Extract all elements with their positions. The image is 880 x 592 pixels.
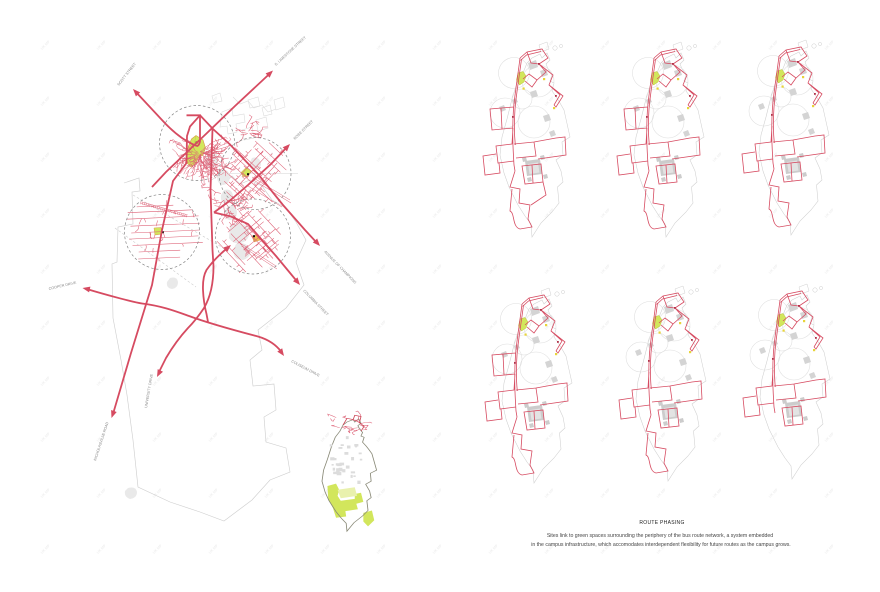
svg-text:UK MP: UK MP — [152, 319, 163, 330]
svg-text:UK MP: UK MP — [264, 263, 275, 274]
svg-text:UK MP: UK MP — [376, 95, 387, 106]
svg-text:UK MP: UK MP — [264, 39, 275, 50]
svg-text:UK MP: UK MP — [488, 431, 499, 442]
svg-text:UK MP: UK MP — [432, 319, 443, 330]
svg-text:UK MP: UK MP — [712, 39, 723, 50]
svg-text:UK MP: UK MP — [152, 95, 163, 106]
svg-text:UK MP: UK MP — [544, 39, 555, 50]
svg-text:UK MP: UK MP — [488, 375, 499, 386]
svg-text:UK MP: UK MP — [824, 543, 835, 554]
svg-text:UK MP: UK MP — [320, 207, 331, 218]
svg-text:UK MP: UK MP — [824, 487, 835, 498]
svg-text:UK MP: UK MP — [600, 151, 611, 162]
svg-text:UK MP: UK MP — [40, 207, 51, 218]
svg-text:UK MP: UK MP — [264, 487, 275, 498]
svg-text:UK MP: UK MP — [376, 487, 387, 498]
svg-text:UK MP: UK MP — [40, 263, 51, 274]
svg-text:UK MP: UK MP — [824, 151, 835, 162]
svg-text:UK MP: UK MP — [40, 95, 51, 106]
svg-text:UK MP: UK MP — [488, 207, 499, 218]
svg-text:SCOTT STREET: SCOTT STREET — [117, 61, 138, 86]
svg-text:UK MP: UK MP — [488, 487, 499, 498]
svg-text:UK MP: UK MP — [376, 263, 387, 274]
svg-text:UK MP: UK MP — [600, 319, 611, 330]
svg-text:UK MP: UK MP — [712, 151, 723, 162]
svg-text:UK MP: UK MP — [656, 263, 667, 274]
svg-text:S. LIMESTONE STREET: S. LIMESTONE STREET — [274, 35, 307, 67]
svg-text:UK MP: UK MP — [488, 263, 499, 274]
svg-text:UK MP: UK MP — [40, 375, 51, 386]
svg-text:UK MP: UK MP — [824, 263, 835, 274]
svg-text:UK MP: UK MP — [600, 263, 611, 274]
svg-text:UK MP: UK MP — [432, 95, 443, 106]
svg-text:UK MP: UK MP — [320, 95, 331, 106]
svg-text:UK MP: UK MP — [376, 207, 387, 218]
svg-text:UK MP: UK MP — [40, 431, 51, 442]
svg-text:ROSE STREET: ROSE STREET — [293, 119, 315, 141]
svg-text:UK MP: UK MP — [376, 151, 387, 162]
svg-text:COLISEUM DRIVE: COLISEUM DRIVE — [291, 359, 321, 378]
svg-text:UK MP: UK MP — [432, 431, 443, 442]
svg-text:UK MP: UK MP — [320, 431, 331, 442]
svg-text:UK MP: UK MP — [96, 263, 107, 274]
svg-text:UK MP: UK MP — [320, 39, 331, 50]
svg-text:UK MP: UK MP — [208, 431, 219, 442]
svg-text:UK MP: UK MP — [152, 151, 163, 162]
svg-text:UK MP: UK MP — [376, 319, 387, 330]
svg-text:UK MP: UK MP — [432, 263, 443, 274]
svg-text:UK MP: UK MP — [600, 431, 611, 442]
svg-text:UK MP: UK MP — [544, 431, 555, 442]
svg-text:UK MP: UK MP — [320, 263, 331, 274]
svg-text:UK MP: UK MP — [600, 95, 611, 106]
svg-text:UK MP: UK MP — [768, 487, 779, 498]
svg-text:UK MP: UK MP — [768, 151, 779, 162]
svg-text:UK MP: UK MP — [656, 431, 667, 442]
svg-text:UK MP: UK MP — [96, 207, 107, 218]
svg-text:UK MP: UK MP — [96, 151, 107, 162]
svg-text:UK MP: UK MP — [376, 431, 387, 442]
svg-text:UK MP: UK MP — [600, 207, 611, 218]
svg-text:UK MP: UK MP — [376, 39, 387, 50]
svg-text:UK MP: UK MP — [600, 487, 611, 498]
svg-text:UK MP: UK MP — [152, 375, 163, 386]
svg-text:UK MP: UK MP — [824, 39, 835, 50]
svg-text:UK MP: UK MP — [376, 375, 387, 386]
svg-text:COOPER DRIVE: COOPER DRIVE — [48, 281, 77, 291]
svg-text:UK MP: UK MP — [320, 375, 331, 386]
svg-text:UK MP: UK MP — [96, 95, 107, 106]
svg-text:UK MP: UK MP — [432, 375, 443, 386]
svg-text:UK MP: UK MP — [152, 543, 163, 554]
svg-text:UK MP: UK MP — [656, 207, 667, 218]
svg-text:UK MP: UK MP — [40, 39, 51, 50]
svg-text:in the campus infrastructure,: in the campus infrastructure, which acco… — [531, 542, 791, 548]
svg-text:UK MP: UK MP — [40, 543, 51, 554]
svg-text:UK MP: UK MP — [712, 319, 723, 330]
svg-text:UK MP: UK MP — [432, 543, 443, 554]
svg-text:UK MP: UK MP — [768, 263, 779, 274]
svg-text:UK MP: UK MP — [600, 375, 611, 386]
svg-text:UK MP: UK MP — [432, 487, 443, 498]
svg-text:UK MP: UK MP — [712, 95, 723, 106]
svg-text:UK MP: UK MP — [488, 39, 499, 50]
svg-text:UK MP: UK MP — [824, 95, 835, 106]
svg-text:UK MP: UK MP — [152, 39, 163, 50]
svg-text:UK MP: UK MP — [320, 151, 331, 162]
svg-text:UK MP: UK MP — [712, 207, 723, 218]
svg-text:UK MP: UK MP — [488, 543, 499, 554]
svg-text:UK MP: UK MP — [264, 543, 275, 554]
svg-text:UK MP: UK MP — [656, 487, 667, 498]
svg-text:UK MP: UK MP — [96, 487, 107, 498]
svg-text:UK MP: UK MP — [824, 319, 835, 330]
svg-text:UK MP: UK MP — [544, 263, 555, 274]
svg-text:UK MP: UK MP — [96, 375, 107, 386]
svg-text:UK MP: UK MP — [40, 151, 51, 162]
svg-text:UK MP: UK MP — [208, 487, 219, 498]
svg-text:UK MP: UK MP — [544, 487, 555, 498]
svg-text:UK MP: UK MP — [152, 487, 163, 498]
svg-text:UK MP: UK MP — [376, 543, 387, 554]
svg-text:UK MP: UK MP — [40, 487, 51, 498]
svg-text:UNIVERSITY DRIVE: UNIVERSITY DRIVE — [144, 373, 154, 408]
svg-text:UK MP: UK MP — [656, 39, 667, 50]
svg-text:UK MP: UK MP — [432, 207, 443, 218]
svg-text:UK MP: UK MP — [544, 95, 555, 106]
svg-text:UK MP: UK MP — [712, 487, 723, 498]
svg-text:UK MP: UK MP — [824, 207, 835, 218]
svg-text:UK MP: UK MP — [712, 431, 723, 442]
svg-text:UK MP: UK MP — [824, 431, 835, 442]
svg-text:UK MP: UK MP — [432, 39, 443, 50]
svg-text:UK MP: UK MP — [488, 95, 499, 106]
svg-text:UK MP: UK MP — [40, 319, 51, 330]
svg-text:Sites link to green spaces sur: Sites link to green spaces surrounding t… — [547, 533, 773, 539]
svg-text:UK MP: UK MP — [96, 39, 107, 50]
svg-text:UK MP: UK MP — [488, 319, 499, 330]
svg-text:UK MP: UK MP — [208, 543, 219, 554]
svg-text:UK MP: UK MP — [656, 95, 667, 106]
svg-text:UK MP: UK MP — [320, 543, 331, 554]
svg-text:UK MP: UK MP — [208, 375, 219, 386]
svg-text:ROUTE PHASING: ROUTE PHASING — [639, 520, 684, 526]
svg-text:UK MP: UK MP — [96, 543, 107, 554]
svg-text:UK MP: UK MP — [96, 319, 107, 330]
svg-text:UK MP: UK MP — [600, 39, 611, 50]
svg-text:UK MP: UK MP — [432, 151, 443, 162]
svg-text:UK MP: UK MP — [208, 39, 219, 50]
svg-text:UK MP: UK MP — [320, 319, 331, 330]
svg-text:UK MP: UK MP — [264, 207, 275, 218]
svg-text:UK MP: UK MP — [152, 431, 163, 442]
svg-text:UK MP: UK MP — [712, 263, 723, 274]
svg-text:COLUMBIA STREET: COLUMBIA STREET — [302, 289, 329, 317]
svg-text:UK MP: UK MP — [656, 375, 667, 386]
svg-text:NICHOLASVILLE ROAD: NICHOLASVILLE ROAD — [93, 421, 109, 461]
svg-text:UK MP: UK MP — [768, 39, 779, 50]
svg-text:UK MP: UK MP — [768, 375, 779, 386]
svg-text:UK MP: UK MP — [544, 207, 555, 218]
svg-text:UK MP: UK MP — [712, 375, 723, 386]
svg-text:UK MP: UK MP — [768, 431, 779, 442]
